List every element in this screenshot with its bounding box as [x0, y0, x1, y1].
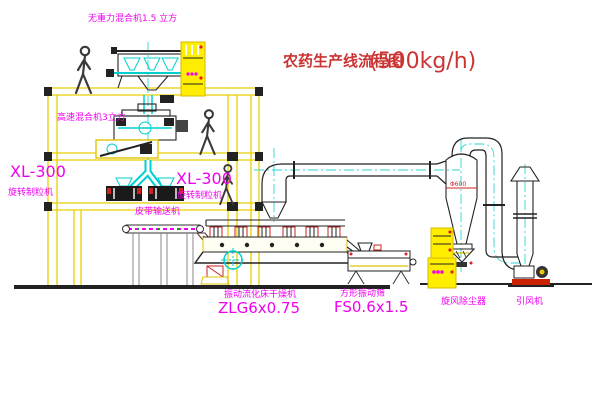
square-sieve-machine: [347, 240, 416, 284]
person-figure-1: [76, 47, 91, 93]
fluid-bed-dryer-machine: [195, 202, 355, 284]
control-cabinet-right: [428, 228, 456, 288]
cyclone-outlet-pipe: [452, 138, 520, 270]
exhaust-duct: [262, 161, 446, 202]
pesticide-line-flow-diagram: 无重力混合机1.5 立方 农药生产线流程图 (500kg/h) 高速混合机3立方…: [0, 0, 600, 403]
ground-line-left: [14, 285, 390, 289]
diagram-title-capacity: (500kg/h): [369, 49, 476, 74]
label-cyclone: 旋风除尘器: [441, 295, 486, 307]
diagram-canvas: 无重力混合机1.5 立方 农药生产线流程图 (500kg/h) 高速混合机3立方…: [0, 0, 600, 403]
label-belt-conveyor: 皮带输送机: [135, 205, 180, 217]
label-fan: 引风机: [516, 295, 543, 307]
label-granulator-left: 旋转制粒机: [8, 186, 53, 198]
label-xl300-mid: XL-300: [176, 169, 232, 188]
vibration-motor: [201, 248, 245, 284]
label-gravity-mixer: 无重力混合机1.5 立方: [88, 12, 177, 24]
label-sieve-model: FS0.6x1.5: [334, 298, 408, 316]
person-figure-2: [200, 110, 214, 154]
induced-draft-fan: [508, 266, 554, 286]
label-xl300-left: XL-300: [10, 162, 66, 181]
label-dryer-model: ZLG6x0.75: [218, 299, 300, 317]
label-granulator-mid: 旋转制粒机: [177, 189, 222, 201]
control-cabinet-top: [181, 42, 205, 96]
label-cyclone-diameter: Φ600: [450, 181, 466, 188]
exhaust-stack: [511, 167, 539, 266]
label-high-speed-mixer: 高速混合机3立方: [57, 111, 126, 123]
